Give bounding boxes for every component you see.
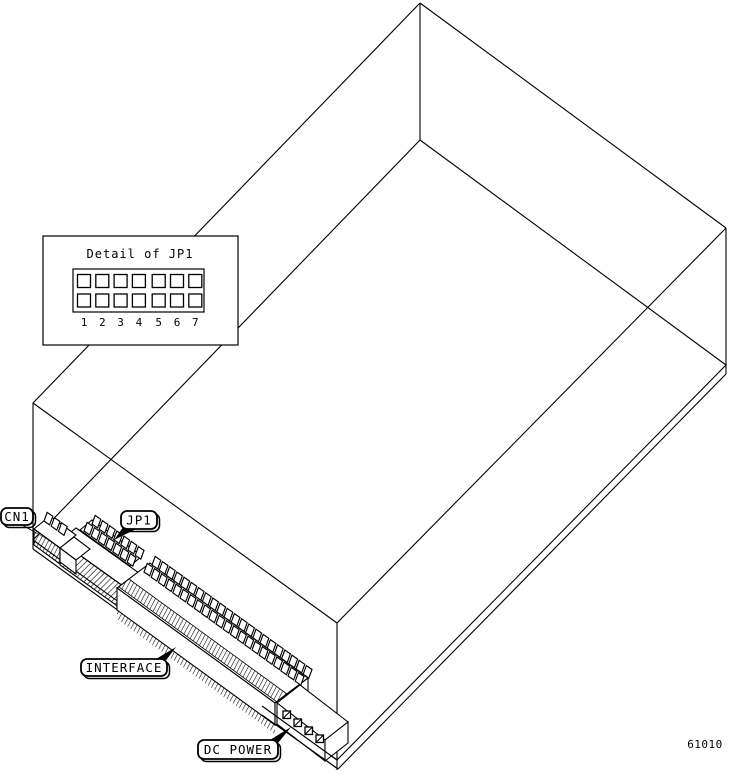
interface-label: INTERFACE bbox=[86, 660, 163, 675]
jumper-pin-square bbox=[114, 294, 127, 307]
jp1-callout: JP1 bbox=[114, 511, 160, 540]
jumper-pin-square bbox=[96, 275, 109, 288]
jumper-pin-square bbox=[96, 294, 109, 307]
interface-callout: INTERFACE bbox=[81, 647, 176, 679]
jumper-pin-square bbox=[152, 275, 165, 288]
jumper-pin-square bbox=[189, 275, 202, 288]
jumper-pin-square bbox=[114, 275, 127, 288]
detail-inset-title: Detail of JP1 bbox=[87, 247, 194, 261]
drive-isometric-diagram: Detail of JP1 1234567 bbox=[0, 0, 730, 774]
jumper-pin-square bbox=[78, 294, 91, 307]
dc-power-label: DC POWER bbox=[204, 742, 272, 757]
jumper-pin-square bbox=[132, 275, 145, 288]
jumper-pin-number: 4 bbox=[136, 316, 143, 329]
jumper-pin-number: 1 bbox=[81, 316, 88, 329]
jp1-label: JP1 bbox=[126, 513, 152, 528]
jumper-pin-square bbox=[171, 275, 184, 288]
jumper-pin-square bbox=[189, 294, 202, 307]
jumper-pin-number: 7 bbox=[192, 316, 199, 329]
hardware-diagram-page: Detail of JP1 1234567 bbox=[0, 0, 730, 774]
jumper-pin-square bbox=[132, 294, 145, 307]
jumper-pin-square bbox=[152, 294, 165, 307]
jumper-pin-number: 3 bbox=[117, 316, 124, 329]
jp1-detail-inset: Detail of JP1 1234567 bbox=[43, 236, 238, 345]
enclosure-wireframe bbox=[33, 3, 726, 770]
jumper-pin-square bbox=[78, 275, 91, 288]
dc-power-callout: DC POWER bbox=[198, 727, 291, 762]
cn1-label: CN1 bbox=[4, 509, 30, 524]
jumper-pin-number: 5 bbox=[155, 316, 162, 329]
jumper-pin-number: 6 bbox=[174, 316, 181, 329]
figure-number: 61010 bbox=[687, 738, 723, 751]
jumper-pin-number: 2 bbox=[99, 316, 106, 329]
jumper-pin-square bbox=[171, 294, 184, 307]
